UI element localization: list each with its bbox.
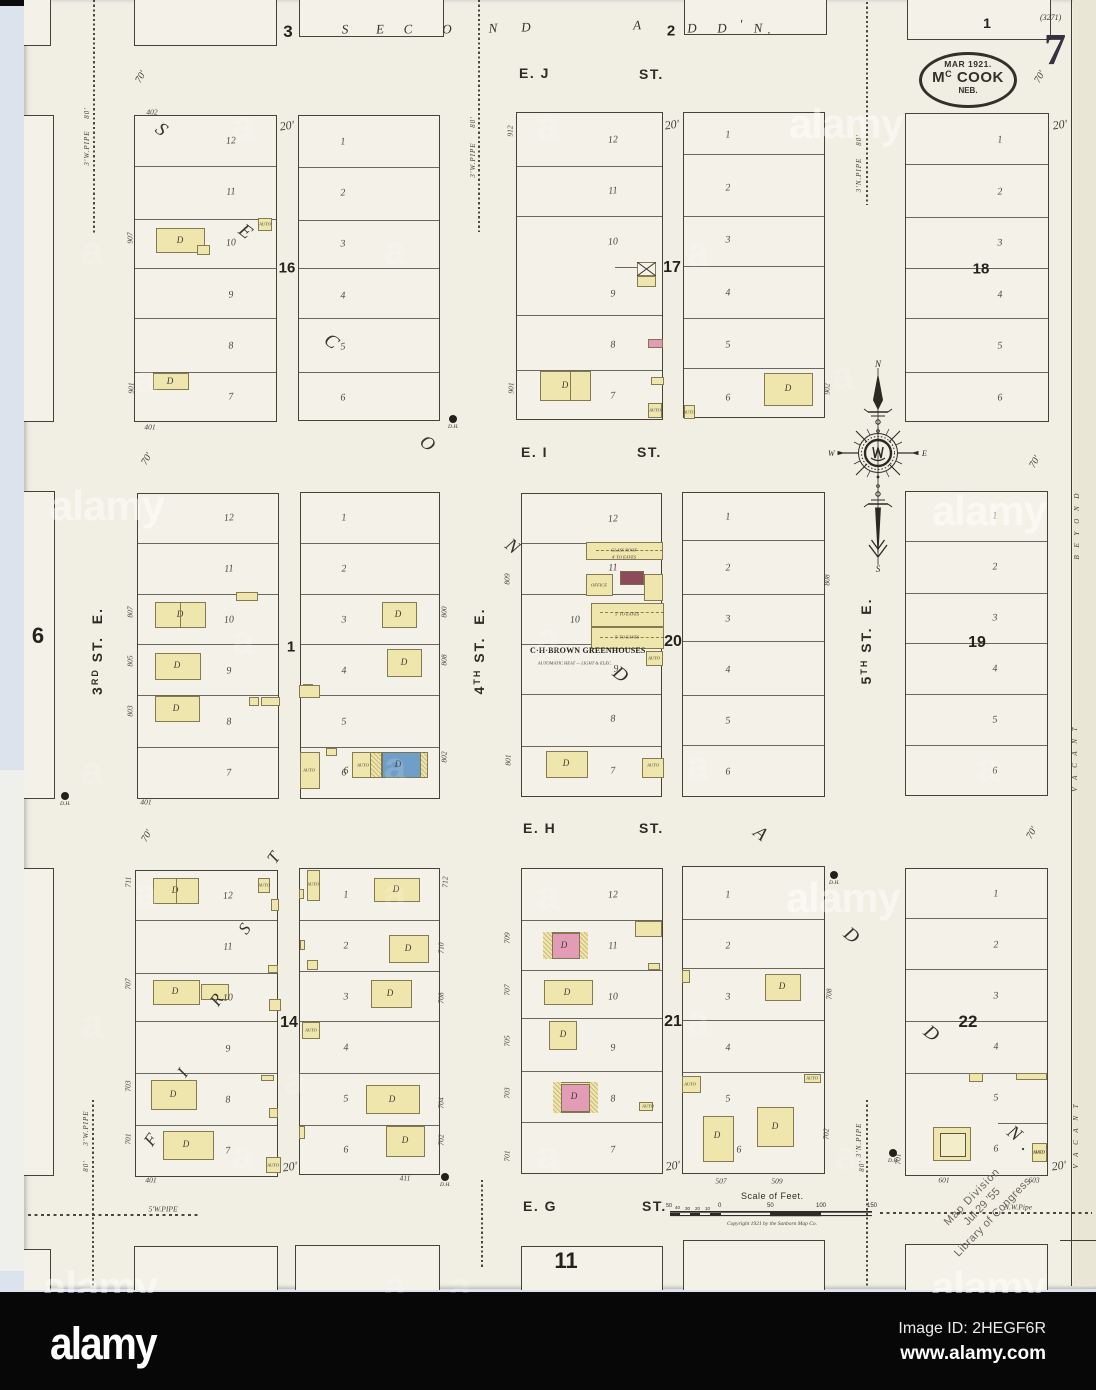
svg-text:20: 20 bbox=[695, 1206, 701, 1211]
svg-text:10: 10 bbox=[705, 1206, 711, 1211]
svg-text:50: 50 bbox=[666, 1203, 672, 1209]
svg-text:150: 150 bbox=[867, 1203, 878, 1209]
svg-text:100: 100 bbox=[816, 1203, 827, 1209]
svg-text:W: W bbox=[828, 449, 836, 458]
svg-text:S: S bbox=[876, 564, 881, 574]
svg-text:50: 50 bbox=[767, 1203, 774, 1209]
svg-text:40: 40 bbox=[675, 1205, 681, 1210]
svg-text:E: E bbox=[921, 449, 927, 458]
svg-text:N: N bbox=[874, 360, 882, 369]
svg-text:30: 30 bbox=[685, 1206, 691, 1211]
svg-text:0: 0 bbox=[718, 1203, 722, 1209]
